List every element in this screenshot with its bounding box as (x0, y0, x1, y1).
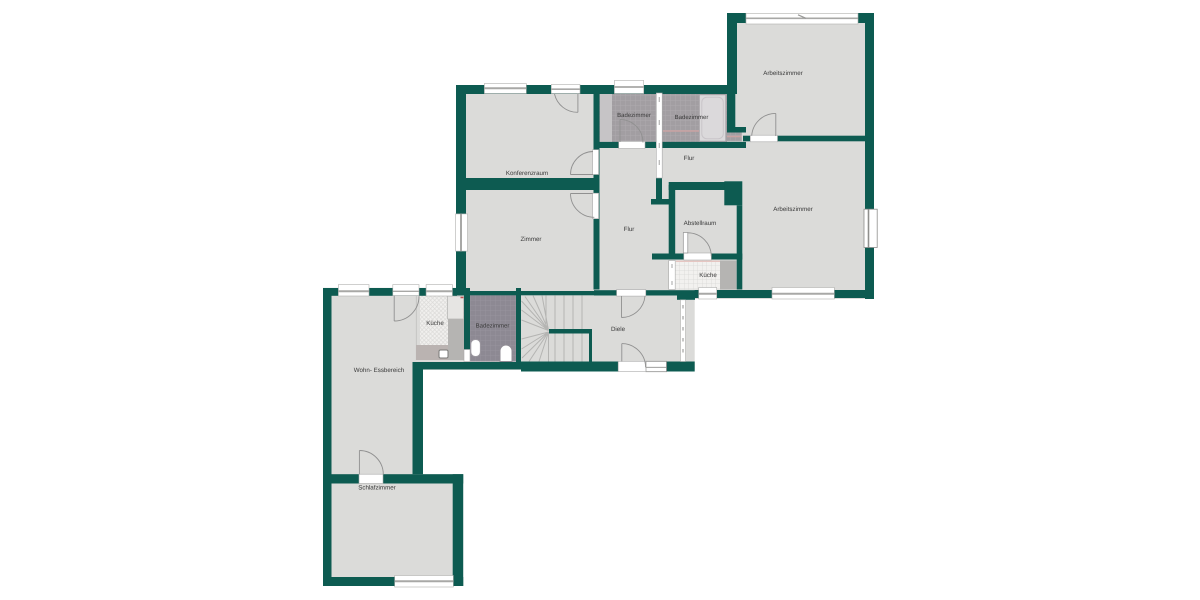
svg-text:Arbeitszimmer: Arbeitszimmer (773, 206, 813, 213)
svg-text:Badezimmer: Badezimmer (675, 114, 709, 121)
svg-text:Zimmer: Zimmer (521, 236, 542, 243)
svg-text:Arbeitszimmer: Arbeitszimmer (763, 70, 803, 77)
svg-text:Badezimmer: Badezimmer (617, 112, 651, 119)
svg-text:Flur: Flur (684, 155, 695, 162)
svg-text:Konferenzraum: Konferenzraum (506, 170, 548, 177)
svg-text:Diele: Diele (611, 326, 626, 333)
svg-text:Küche: Küche (426, 320, 444, 327)
svg-text:Küche: Küche (699, 272, 717, 279)
svg-text:Wohn- Essbereich: Wohn- Essbereich (354, 367, 405, 374)
svg-text:Abstellraum: Abstellraum (684, 220, 717, 227)
svg-text:Badezimmer: Badezimmer (476, 323, 510, 330)
svg-text:Flur: Flur (624, 226, 635, 233)
svg-text:Schlafzimmer: Schlafzimmer (358, 485, 395, 492)
